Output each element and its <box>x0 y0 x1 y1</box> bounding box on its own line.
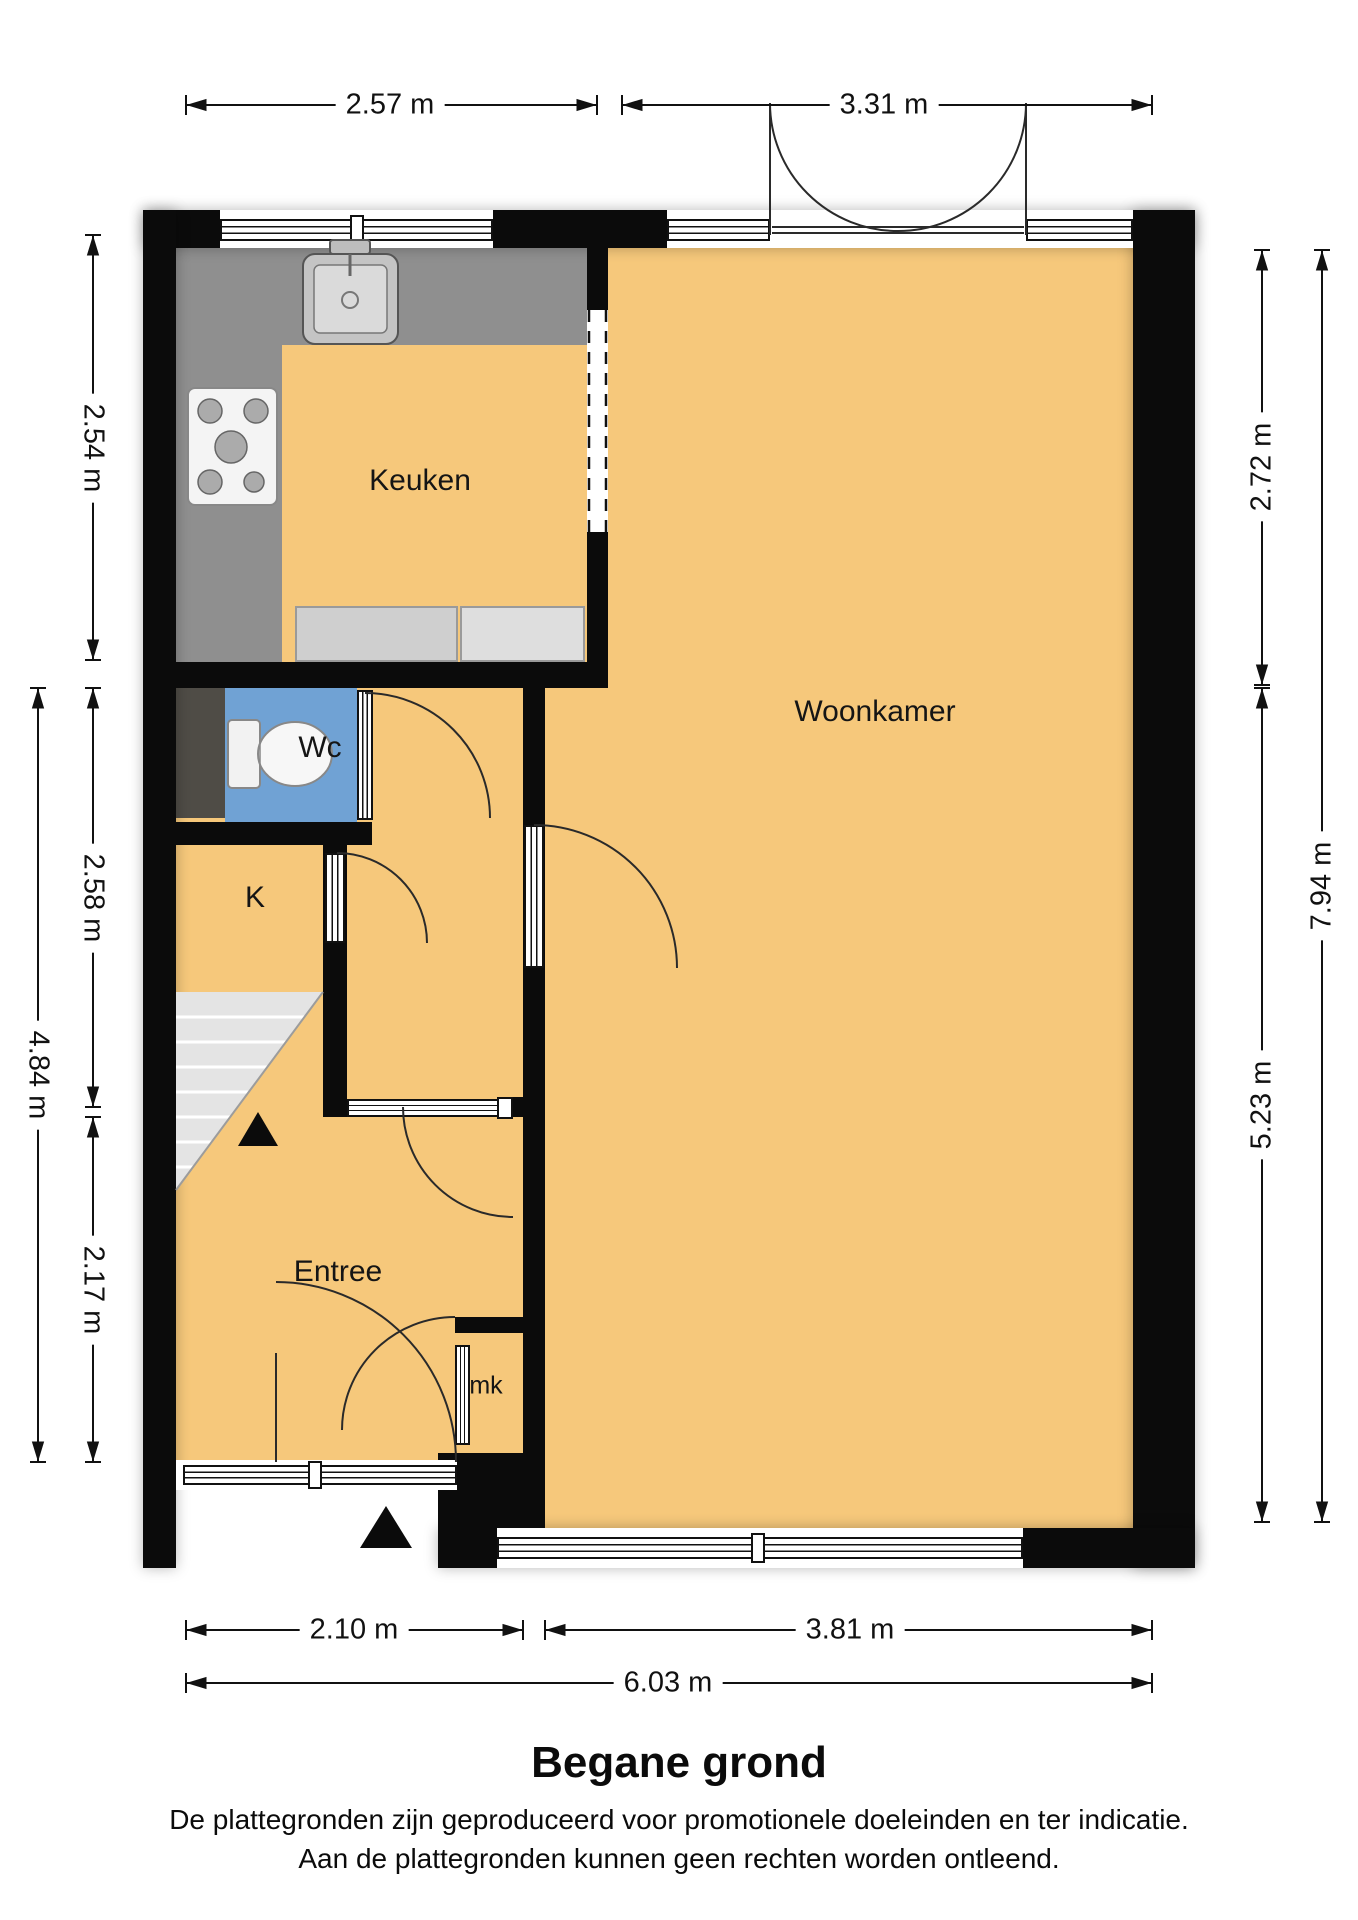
dim-left-keuken: 2.54 m <box>77 394 110 503</box>
dim-left-entree: 2.17 m <box>77 1236 110 1345</box>
wall-kitchen-bottom <box>176 662 608 688</box>
wall-left <box>143 210 176 1568</box>
disclaimer: De plattegronden zijn geproduceerd voor … <box>0 1800 1358 1878</box>
disclaimer-line-2: Aan de plattegronden kunnen geen rechten… <box>0 1839 1358 1878</box>
opening-kitchen-woonkamer <box>587 310 608 532</box>
room-label-keuken: Keuken <box>369 464 471 498</box>
floor-woonkamer-bottom <box>545 1460 1133 1528</box>
woonkamer-window-left <box>667 219 770 241</box>
room-label-k: K <box>245 881 265 915</box>
kitchen-counter-top <box>176 248 587 345</box>
kitchen-appliance-right <box>460 606 585 662</box>
kitchen-counter-left <box>176 345 282 662</box>
wall-right <box>1133 210 1195 1568</box>
room-label-woonkamer: Woonkamer <box>794 695 955 729</box>
k-door <box>325 853 345 943</box>
dim-left-total: 4.84 m <box>22 1021 55 1130</box>
disclaimer-line-1: De plattegronden zijn geproduceerd voor … <box>0 1800 1358 1839</box>
woonkamer-window-right <box>1026 219 1133 241</box>
dim-right-woonkamer: 5.23 m <box>1246 1051 1279 1160</box>
room-label-mk: mk <box>469 1372 502 1401</box>
french-door-gap <box>770 210 1026 248</box>
kitchen-window-post <box>350 215 364 245</box>
woonkamer-door <box>524 825 544 968</box>
dim-top-kitchen: 2.57 m <box>336 89 445 122</box>
entrance-arrow-icon <box>360 1506 412 1548</box>
dim-right-top: 2.72 m <box>1246 413 1279 522</box>
entree-facade-post <box>308 1461 322 1489</box>
room-label-wc: Wc <box>298 731 341 765</box>
dim-left-middle: 2.58 m <box>77 844 110 953</box>
page-title: Begane grond <box>0 1738 1358 1788</box>
kitchen-appliance-left <box>295 606 458 662</box>
woonkamer-window-bottom-post <box>751 1533 765 1563</box>
wc-cabinet <box>176 685 225 818</box>
dim-bottom-entree: 2.10 m <box>300 1614 409 1647</box>
room-label-entree: Entree <box>294 1255 382 1289</box>
dim-right-total: 7.94 m <box>1306 832 1339 941</box>
wall-wc-bottom <box>176 822 372 845</box>
wc-door <box>357 690 373 820</box>
floorplan-page: Keuken Wc K Woonkamer Entree mk 2.57 m 3… <box>0 0 1358 1920</box>
entree-hall-window <box>347 1099 505 1117</box>
wall-hall-woonkamer <box>523 688 545 1528</box>
wall-mk-top <box>455 1317 545 1333</box>
entree-hall-frame-cap <box>497 1097 513 1119</box>
mk-door <box>455 1345 470 1445</box>
wall-divider-stub <box>513 1097 523 1117</box>
dim-bottom-woonkamer: 3.81 m <box>796 1614 905 1647</box>
dim-top-woonkamer: 3.31 m <box>830 89 939 122</box>
dim-bottom-total: 6.03 m <box>614 1667 723 1700</box>
